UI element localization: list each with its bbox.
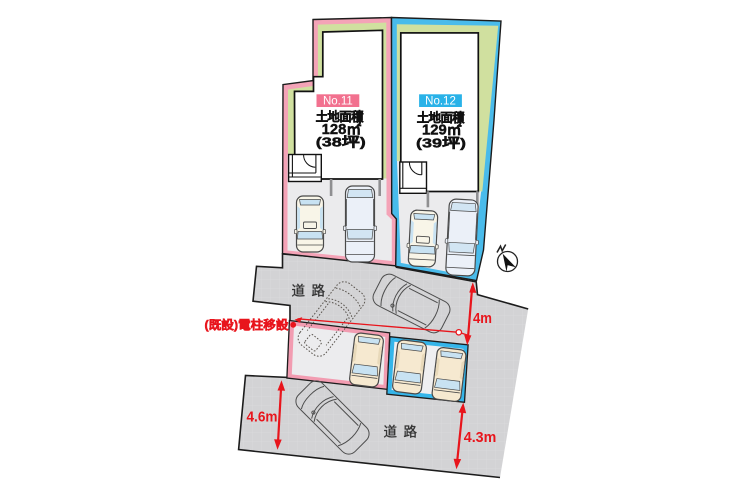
svg-text:No.11: No.11 <box>323 96 353 108</box>
svg-text:4.6m: 4.6m <box>247 410 278 426</box>
svg-text:(既設)電柱移設: (既設)電柱移設 <box>205 317 290 332</box>
svg-text:4.3m: 4.3m <box>464 429 497 446</box>
svg-text:4m: 4m <box>473 310 492 327</box>
svg-text:(39坪): (39坪) <box>416 135 466 150</box>
svg-text:(38坪): (38坪) <box>316 135 366 150</box>
svg-text:No.12: No.12 <box>425 96 456 108</box>
